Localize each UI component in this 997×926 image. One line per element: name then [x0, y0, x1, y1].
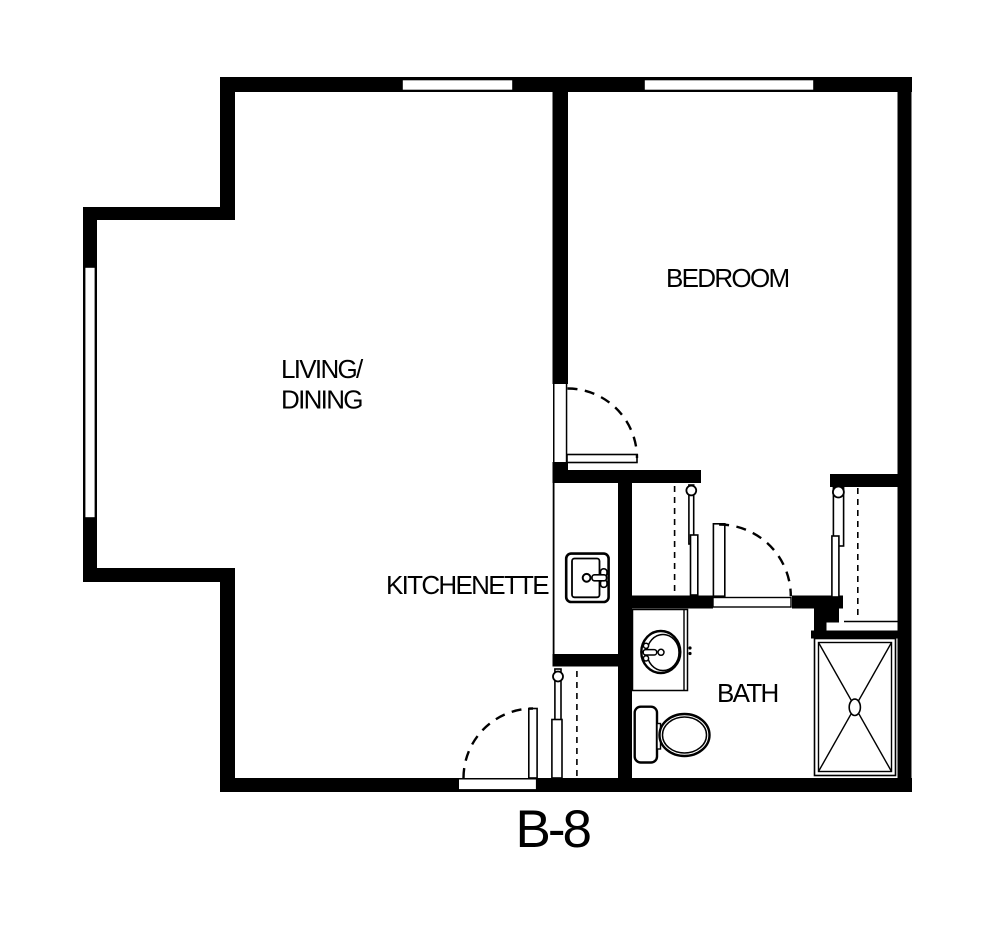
svg-text:BATH: BATH	[717, 678, 778, 708]
svg-text:KITCHENETTE: KITCHENETTE	[386, 570, 549, 600]
svg-text:BEDROOM: BEDROOM	[666, 263, 788, 293]
svg-text:DINING: DINING	[281, 385, 362, 415]
svg-text:B-8: B-8	[516, 800, 591, 859]
svg-text:LIVING/: LIVING/	[281, 354, 364, 384]
